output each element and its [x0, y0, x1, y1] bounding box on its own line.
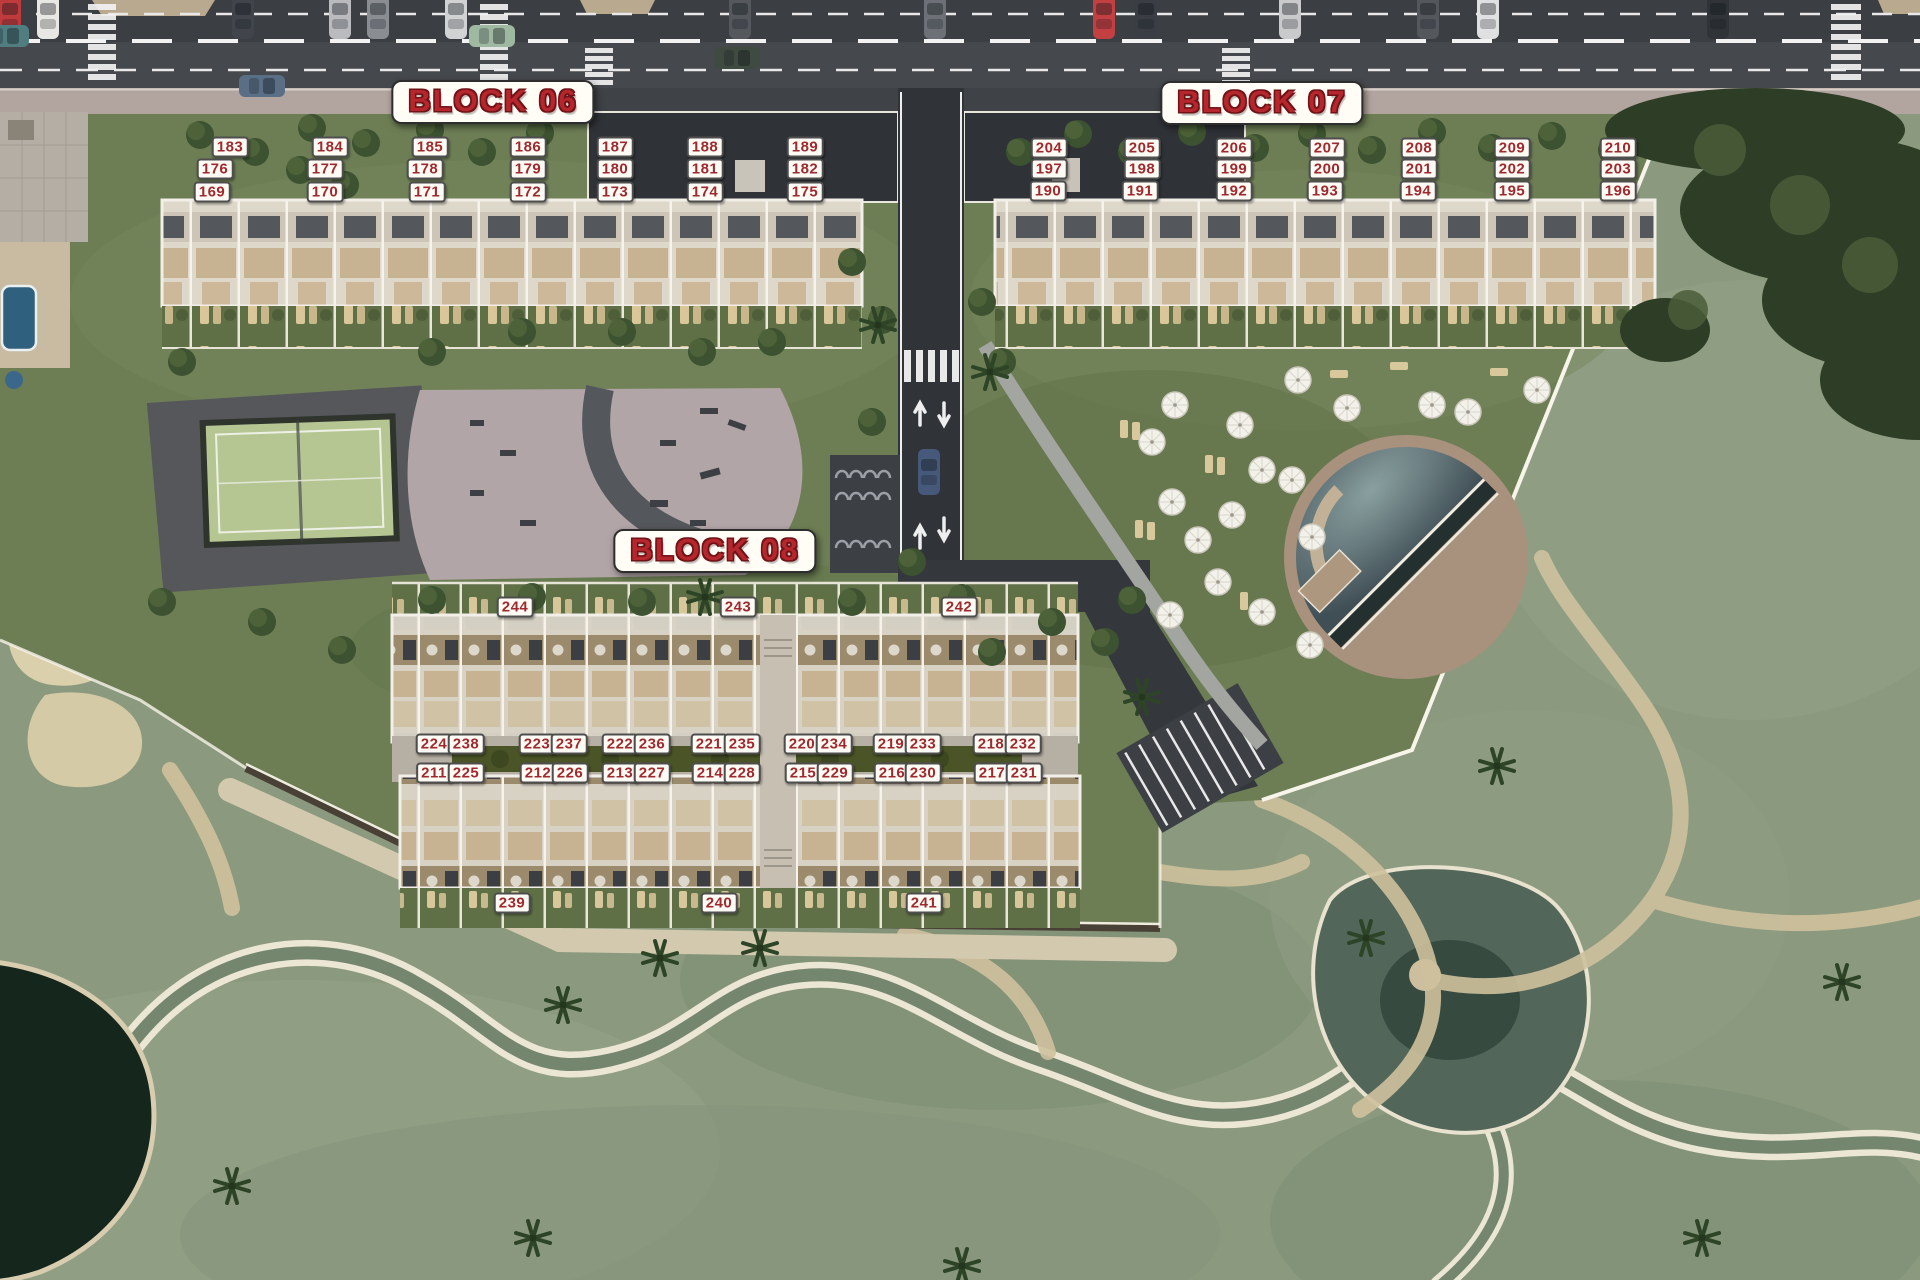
unit-label-176[interactable]: 176	[197, 159, 234, 180]
unit-label-188[interactable]: 188	[687, 137, 724, 158]
unit-label-207[interactable]: 207	[1309, 138, 1346, 159]
unit-label-228[interactable]: 228	[724, 763, 761, 784]
site-plan: ;	[0, 0, 1920, 1280]
unit-label-237[interactable]: 237	[551, 734, 588, 755]
unit-label-233[interactable]: 233	[905, 734, 942, 755]
unit-label-199[interactable]: 199	[1216, 159, 1253, 180]
unit-label-172[interactable]: 172	[510, 182, 547, 203]
unit-label-189[interactable]: 189	[787, 137, 824, 158]
unit-label-236[interactable]: 236	[634, 734, 671, 755]
unit-label-174[interactable]: 174	[687, 182, 724, 203]
unit-label-244[interactable]: 244	[497, 597, 534, 618]
unit-label-202[interactable]: 202	[1494, 159, 1531, 180]
unit-label-197[interactable]: 197	[1031, 159, 1068, 180]
unit-label-198[interactable]: 198	[1124, 159, 1161, 180]
unit-label-232[interactable]: 232	[1005, 734, 1042, 755]
block-title-07: BLOCK 07	[1160, 81, 1363, 125]
unit-label-183[interactable]: 183	[212, 137, 249, 158]
unit-label-229[interactable]: 229	[817, 763, 854, 784]
unit-label-225[interactable]: 225	[448, 763, 485, 784]
unit-label-243[interactable]: 243	[720, 597, 757, 618]
unit-label-181[interactable]: 181	[687, 159, 724, 180]
unit-label-226[interactable]: 226	[552, 763, 589, 784]
unit-label-230[interactable]: 230	[905, 763, 942, 784]
unit-label-241[interactable]: 241	[906, 893, 943, 914]
unit-label-204[interactable]: 204	[1031, 138, 1068, 159]
unit-label-196[interactable]: 196	[1600, 181, 1637, 202]
unit-label-210[interactable]: 210	[1600, 138, 1637, 159]
block-title-06: BLOCK 06	[391, 80, 594, 124]
unit-label-175[interactable]: 175	[787, 182, 824, 203]
unit-label-180[interactable]: 180	[597, 159, 634, 180]
unit-label-242[interactable]: 242	[941, 597, 978, 618]
unit-label-191[interactable]: 191	[1122, 181, 1159, 202]
unit-label-221[interactable]: 221	[691, 734, 728, 755]
unit-label-178[interactable]: 178	[407, 159, 444, 180]
unit-label-194[interactable]: 194	[1400, 181, 1437, 202]
unit-label-173[interactable]: 173	[597, 182, 634, 203]
unit-labels-layer: 1831841851861871881891761771781791801811…	[0, 0, 1920, 1280]
unit-label-185[interactable]: 185	[412, 137, 449, 158]
unit-label-238[interactable]: 238	[448, 734, 485, 755]
unit-label-234[interactable]: 234	[816, 734, 853, 755]
unit-label-186[interactable]: 186	[510, 137, 547, 158]
unit-label-227[interactable]: 227	[634, 763, 671, 784]
unit-label-192[interactable]: 192	[1216, 181, 1253, 202]
unit-label-193[interactable]: 193	[1307, 181, 1344, 202]
unit-label-200[interactable]: 200	[1309, 159, 1346, 180]
unit-label-184[interactable]: 184	[312, 137, 349, 158]
unit-label-190[interactable]: 190	[1030, 181, 1067, 202]
unit-label-195[interactable]: 195	[1494, 181, 1531, 202]
unit-label-209[interactable]: 209	[1494, 138, 1531, 159]
unit-label-169[interactable]: 169	[194, 182, 231, 203]
unit-label-206[interactable]: 206	[1216, 138, 1253, 159]
unit-label-240[interactable]: 240	[701, 893, 738, 914]
unit-label-182[interactable]: 182	[787, 159, 824, 180]
unit-label-170[interactable]: 170	[307, 182, 344, 203]
unit-label-203[interactable]: 203	[1600, 159, 1637, 180]
unit-label-211[interactable]: 211	[416, 763, 452, 784]
unit-label-187[interactable]: 187	[597, 137, 634, 158]
block-title-08: BLOCK 08	[613, 529, 816, 573]
unit-label-171[interactable]: 171	[409, 182, 446, 203]
unit-label-239[interactable]: 239	[494, 893, 531, 914]
unit-label-177[interactable]: 177	[307, 159, 344, 180]
unit-label-235[interactable]: 235	[724, 734, 761, 755]
unit-label-179[interactable]: 179	[510, 159, 547, 180]
unit-label-231[interactable]: 231	[1006, 763, 1043, 784]
unit-label-205[interactable]: 205	[1124, 138, 1161, 159]
unit-label-201[interactable]: 201	[1401, 159, 1438, 180]
unit-label-208[interactable]: 208	[1401, 138, 1438, 159]
